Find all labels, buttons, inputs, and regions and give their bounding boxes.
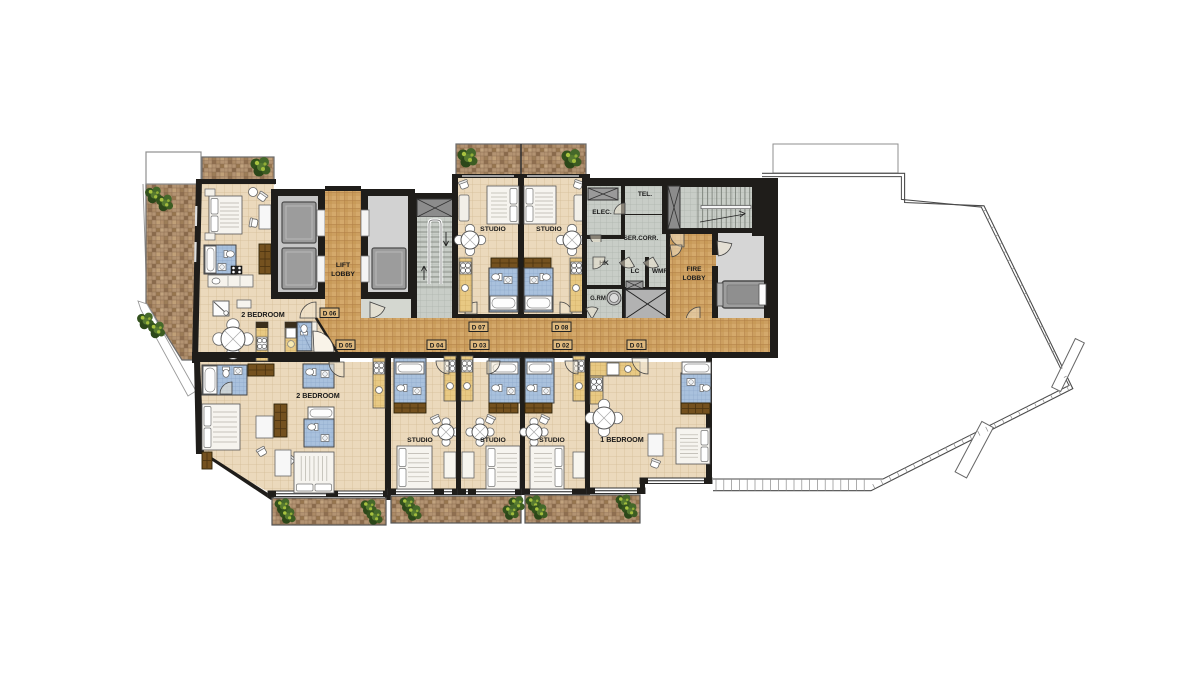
svg-text:2 BEDROOM: 2 BEDROOM <box>241 310 285 319</box>
svg-text:1 BEDROOM: 1 BEDROOM <box>600 435 644 444</box>
svg-text:LOBBY: LOBBY <box>331 271 355 278</box>
svg-text:FIRE: FIRE <box>686 266 702 273</box>
svg-text:D 06: D 06 <box>323 311 337 318</box>
svg-text:STUDIO: STUDIO <box>539 437 565 444</box>
svg-text:D 07: D 07 <box>472 325 486 332</box>
svg-text:D 02: D 02 <box>556 343 570 350</box>
svg-text:D 04: D 04 <box>430 343 444 350</box>
svg-text:STUDIO: STUDIO <box>480 226 506 233</box>
svg-text:D 05: D 05 <box>339 343 353 350</box>
svg-text:SER.CORR.: SER.CORR. <box>624 235 659 242</box>
svg-text:LIFT: LIFT <box>336 262 351 269</box>
svg-text:D 03: D 03 <box>473 343 487 350</box>
svg-text:STUDIO: STUDIO <box>407 437 433 444</box>
svg-text:ELEC.: ELEC. <box>592 209 612 216</box>
svg-text:D 08: D 08 <box>555 325 569 332</box>
svg-text:2 BEDROOM: 2 BEDROOM <box>296 391 340 400</box>
svg-text:LC: LC <box>631 268 640 275</box>
svg-text:G.RM: G.RM <box>590 296 606 302</box>
svg-text:STUDIO: STUDIO <box>536 226 562 233</box>
svg-text:TEL.: TEL. <box>638 191 652 198</box>
svg-text:D 01: D 01 <box>630 343 644 350</box>
svg-text:WMR: WMR <box>652 268 668 275</box>
svg-text:LOBBY: LOBBY <box>682 275 706 282</box>
svg-text:STUDIO: STUDIO <box>480 437 506 444</box>
